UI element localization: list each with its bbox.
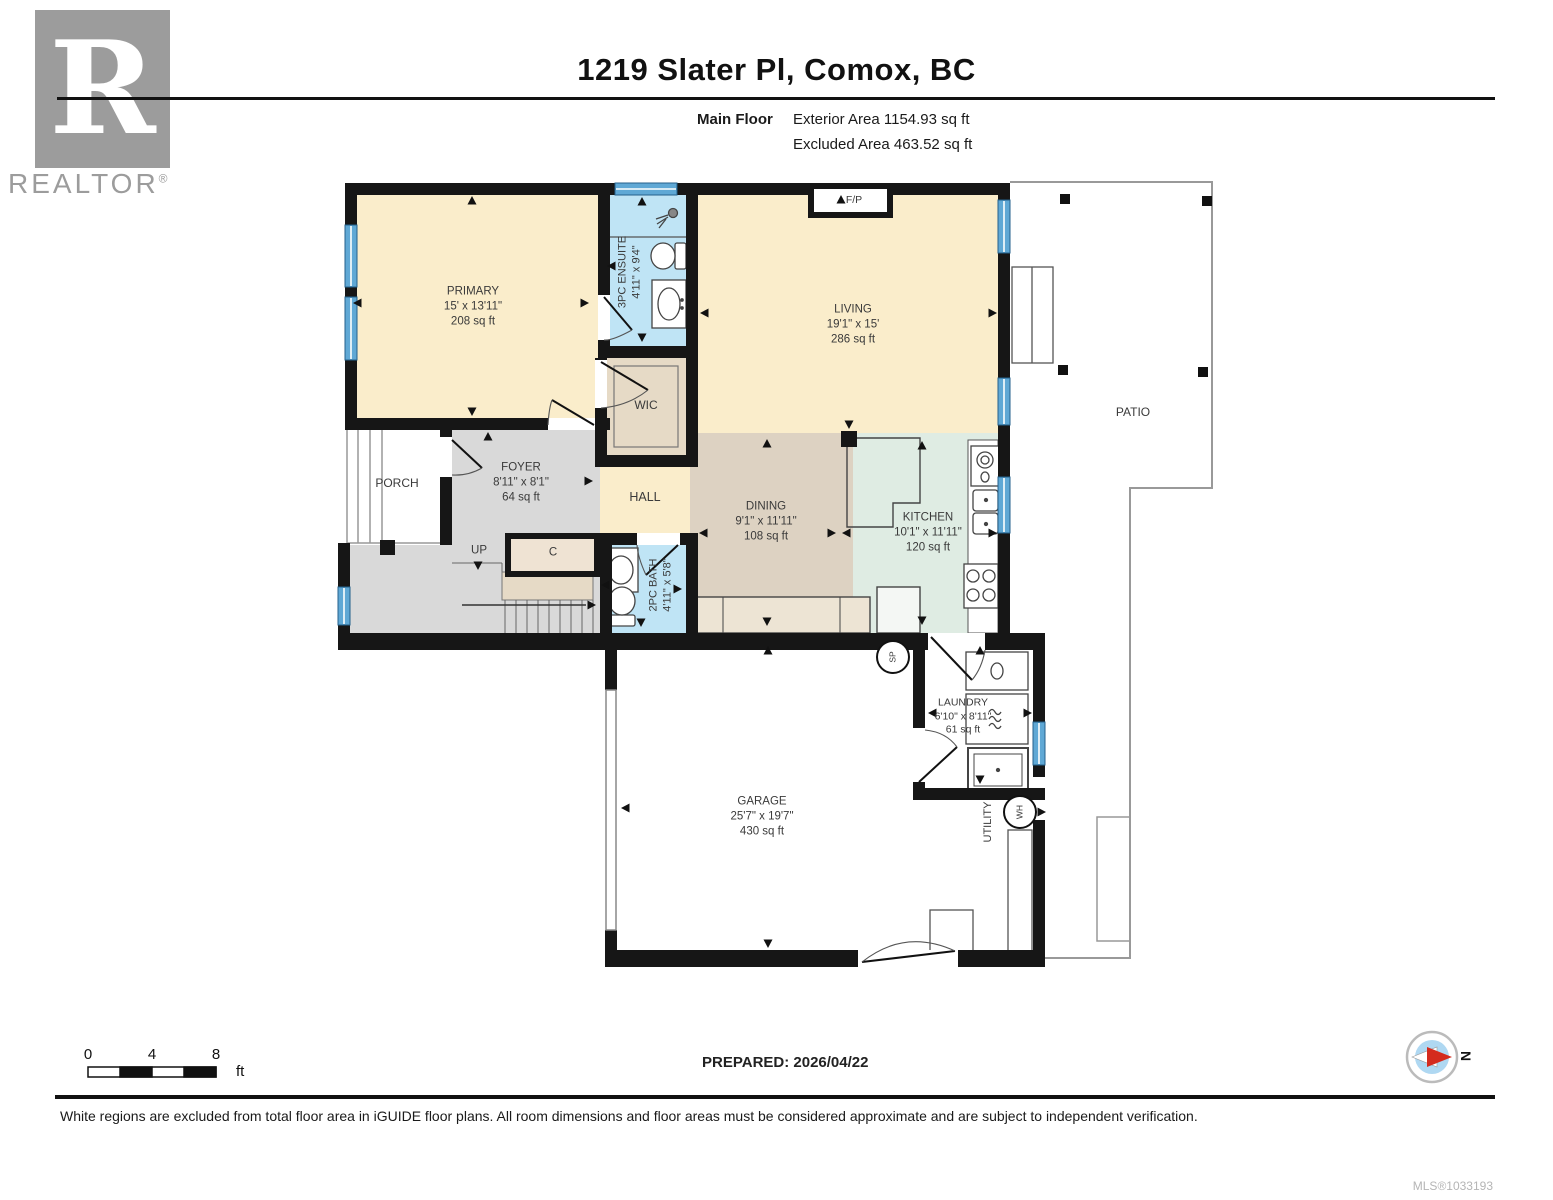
laundry-tub-icon (968, 748, 1028, 792)
scale-tick-0: 0 (84, 1046, 92, 1063)
room-label-kitchen: KITCHEN10'1" x 11'11"120 sq ft (894, 511, 962, 556)
fireplace-label: F/P (846, 194, 862, 208)
room-label-bath: 2PC BATH4'11" x 5'8" (647, 558, 676, 611)
porch-label: PORCH (375, 476, 418, 492)
toilet-icon (651, 243, 686, 269)
mls-number: MLS®1033193 (1413, 1179, 1493, 1193)
scale-tick-8: 8 (212, 1046, 220, 1063)
compass-north-label: N (1457, 1051, 1475, 1061)
room-label-garage: GARAGE25'7" x 19'7"430 sq ft (730, 795, 793, 840)
room-label-laundry: LAUNDRY6'10" x 8'11"61 sq ft (935, 697, 992, 738)
sink-icon (652, 280, 686, 328)
garage-door (606, 690, 616, 930)
bar-counter (695, 597, 870, 633)
utility-label: UTILITY (981, 802, 995, 843)
closet-label: C (549, 546, 557, 561)
wall-stub (841, 431, 857, 447)
room-label-primary: PRIMARY15' x 13'11"208 sq ft (444, 285, 502, 330)
room-label-ensuite: 3PC ENSUITE4'11" x 9'4" (616, 236, 645, 308)
stove-icon (964, 564, 998, 608)
room-label-dining: DINING9'1" x 11'11"108 sq ft (735, 500, 796, 545)
scale-bar (88, 1067, 216, 1077)
scale-tick-4: 4 (148, 1046, 156, 1063)
disclaimer-text: White regions are excluded from total fl… (60, 1108, 1198, 1124)
room-label-foyer: FOYER8'11" x 8'1"64 sq ft (493, 461, 549, 506)
floor-plan-page: R REALTOR® 1219 Slater Pl, Comox, BC Mai… (0, 0, 1553, 1200)
water-heater-label: WH (1014, 805, 1025, 819)
wic-label: WIC (634, 398, 657, 414)
prepared-date: PREPARED: 2026/04/22 (702, 1054, 868, 1071)
up-label: UP (471, 544, 487, 559)
room-label-living: LIVING19'1" x 15'286 sq ft (827, 303, 880, 348)
scale-unit: ft (236, 1063, 244, 1080)
hall-label: HALL (629, 489, 660, 505)
utility-counter (1008, 830, 1032, 955)
dishwasher-icon (877, 587, 920, 633)
compass-icon (1407, 1032, 1457, 1082)
patio-label: PATIO (1116, 405, 1150, 421)
sump-pump-label: SP (887, 651, 898, 662)
toilet-icon (609, 587, 635, 626)
kitchen-sink-icon (971, 446, 999, 534)
floor-plan-graphic (0, 0, 1553, 1200)
patio-posts (1058, 194, 1212, 377)
porch-post (380, 540, 395, 555)
sliding-door (1012, 267, 1053, 363)
